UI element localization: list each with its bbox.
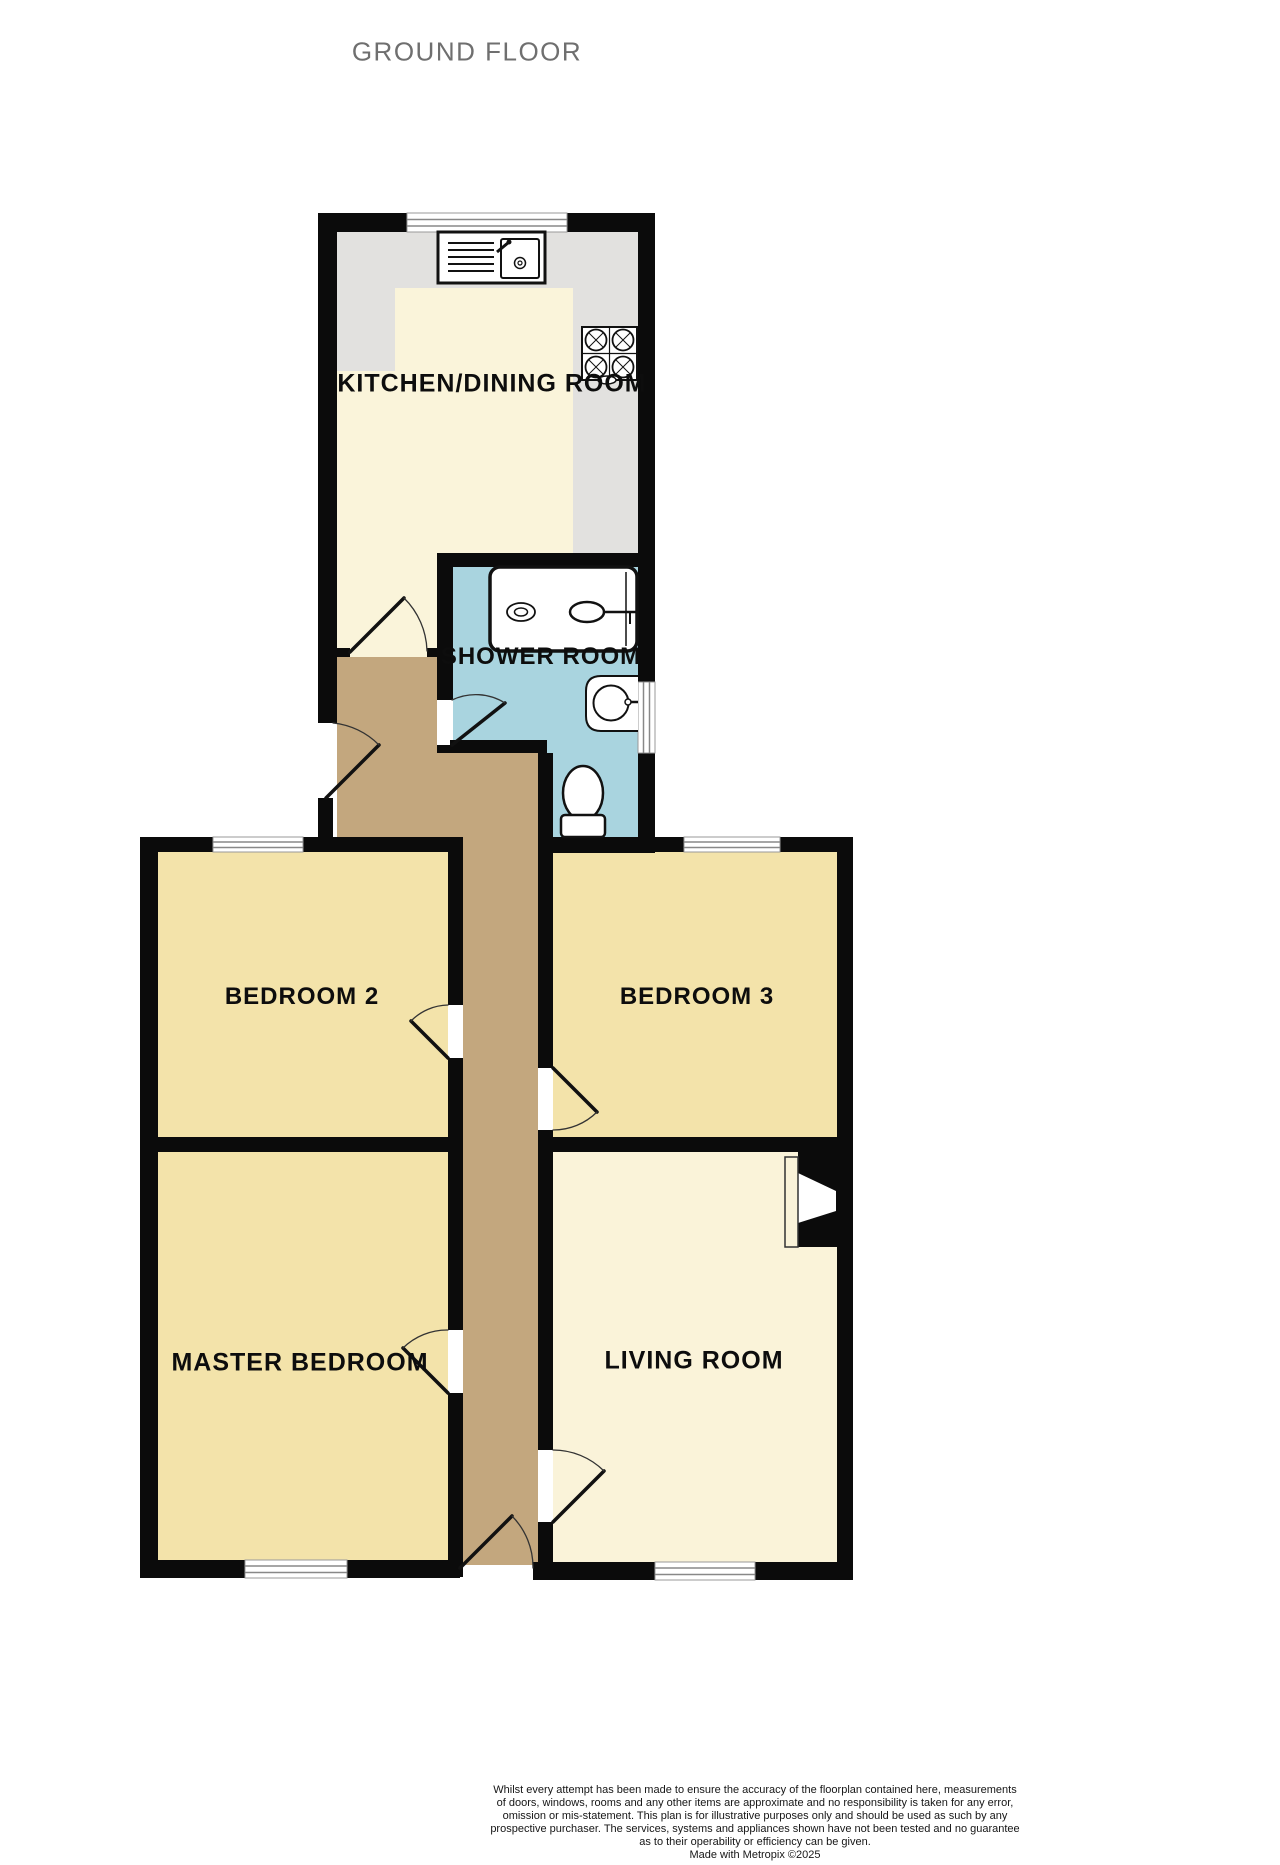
room-label-bedroom-3: BEDROOM 3	[620, 983, 774, 1011]
wash-basin-icon	[586, 676, 638, 731]
disclaimer-line: omission or mis-statement. This plan is …	[425, 1810, 1085, 1823]
wall	[437, 553, 655, 567]
kitchen-window	[407, 213, 567, 232]
wall	[450, 740, 547, 753]
bedroom3-window	[684, 837, 780, 852]
credit-line: Made with Metropix ©2025	[425, 1849, 1085, 1862]
shower-cubicle-icon	[490, 567, 638, 651]
master-bedroom-window	[245, 1560, 347, 1578]
kitchen-counter-left	[337, 232, 395, 371]
sink-icon	[438, 232, 545, 283]
wall	[538, 1152, 553, 1450]
disclaimer-line: prospective purchaser. The services, sys…	[425, 1823, 1085, 1836]
room-label-bedroom-2: BEDROOM 2	[225, 983, 379, 1011]
floorplan-drawing	[0, 0, 1280, 1865]
wall	[427, 648, 440, 657]
wall	[448, 1393, 463, 1577]
wall	[437, 567, 453, 700]
wall	[638, 232, 655, 567]
room-label-master-bedroom: MASTER BEDROOM	[171, 1349, 428, 1378]
wall	[448, 852, 463, 1005]
disclaimer-line: Whilst every attempt has been made to en…	[425, 1784, 1085, 1797]
wall	[553, 1137, 853, 1152]
bedroom2-window	[213, 837, 303, 852]
room-label-living-room: LIVING ROOM	[604, 1347, 783, 1376]
shower-room-window	[638, 682, 655, 753]
wall	[337, 648, 350, 657]
wall	[140, 1137, 463, 1152]
room-label-kitchen-dining: KITCHEN/DINING ROOM	[337, 370, 646, 399]
room-label-shower-room: SHOWER ROOM	[441, 643, 641, 671]
wall	[538, 753, 553, 1068]
disclaimer: Whilst every attempt has been made to en…	[425, 1784, 1085, 1862]
page-title: GROUND FLOOR	[352, 37, 582, 68]
disclaimer-line: as to their operability or efficiency ca…	[425, 1836, 1085, 1849]
toilet-icon	[561, 766, 605, 837]
living-room-window	[655, 1562, 755, 1580]
floorplan-page: GROUND FLOOR KITCHEN/DINING ROOM SHOWER …	[0, 0, 1280, 1865]
wall	[140, 837, 158, 1577]
wall	[318, 232, 337, 723]
wall	[448, 1152, 463, 1330]
disclaimer-line: of doors, windows, rooms and any other i…	[425, 1797, 1085, 1810]
kitchen-floor-arm	[337, 553, 437, 657]
wall	[318, 213, 407, 232]
wall	[567, 213, 655, 232]
wall	[538, 1130, 553, 1152]
